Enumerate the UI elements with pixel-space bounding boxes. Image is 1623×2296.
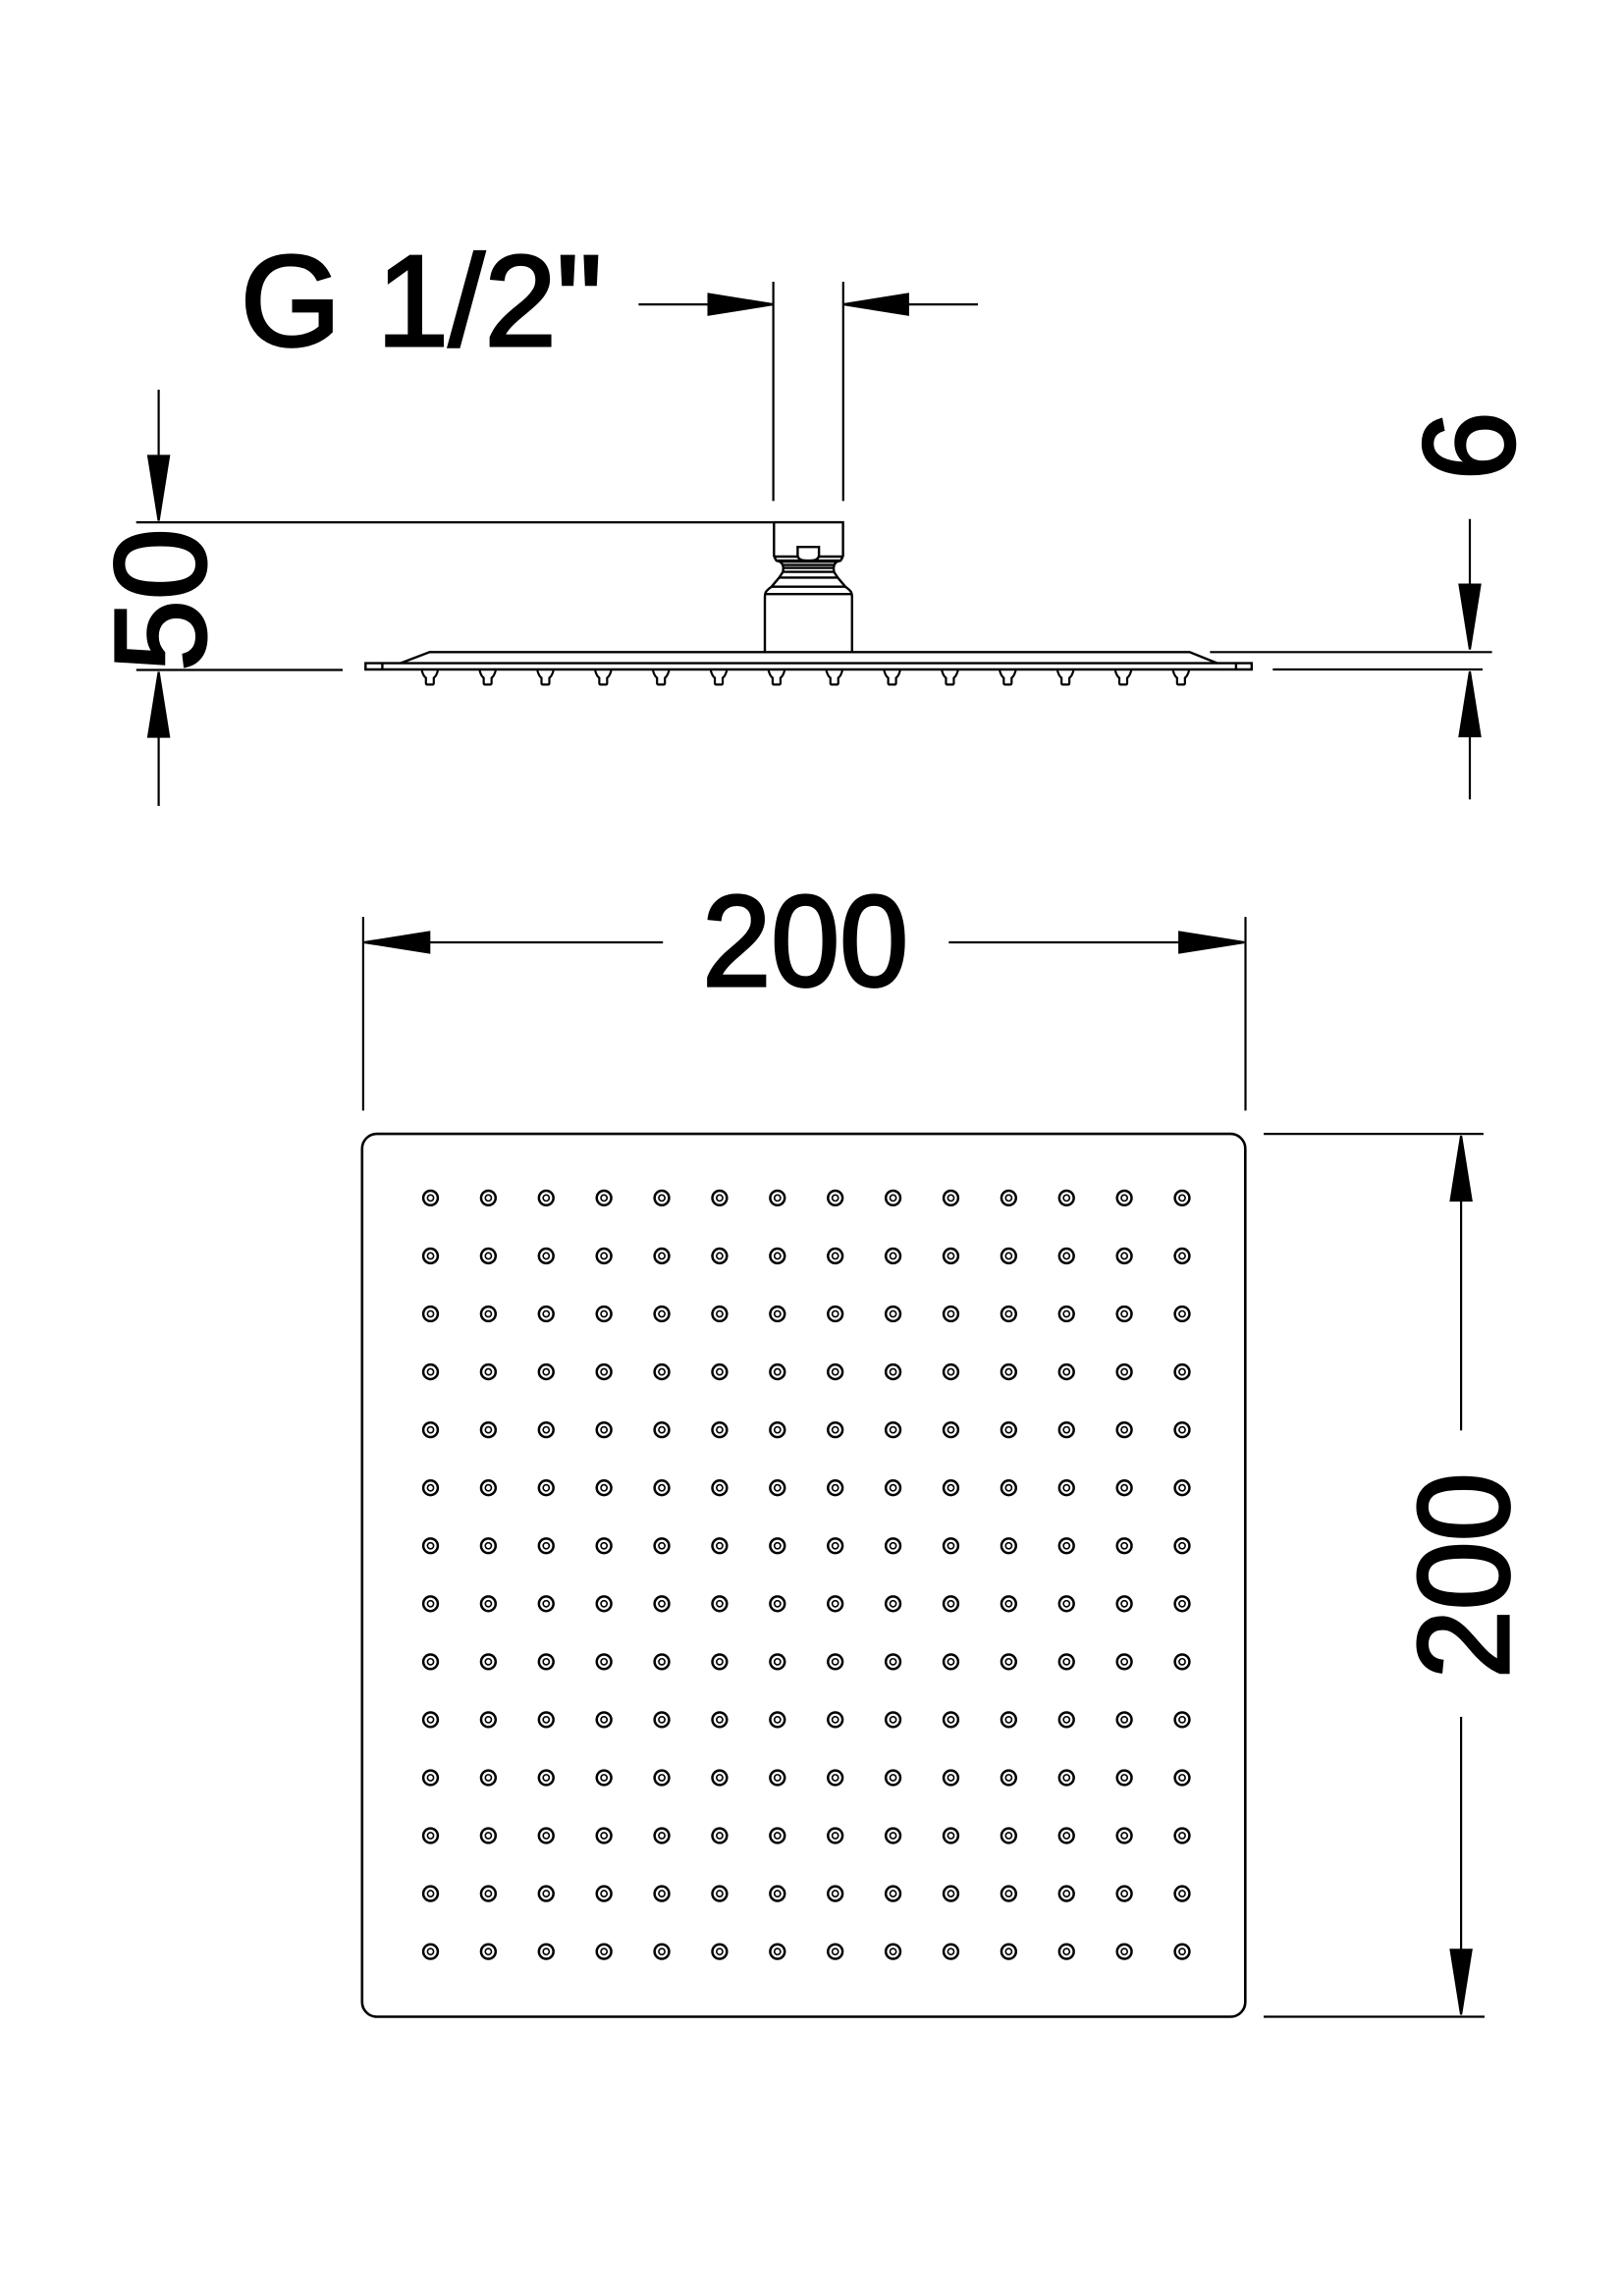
svg-text:50: 50: [87, 528, 233, 671]
svg-text:200: 200: [702, 869, 908, 1013]
svg-text:200: 200: [1391, 1472, 1536, 1679]
svg-text:6: 6: [1397, 411, 1542, 480]
svg-text:G 1/2": G 1/2": [241, 229, 603, 373]
